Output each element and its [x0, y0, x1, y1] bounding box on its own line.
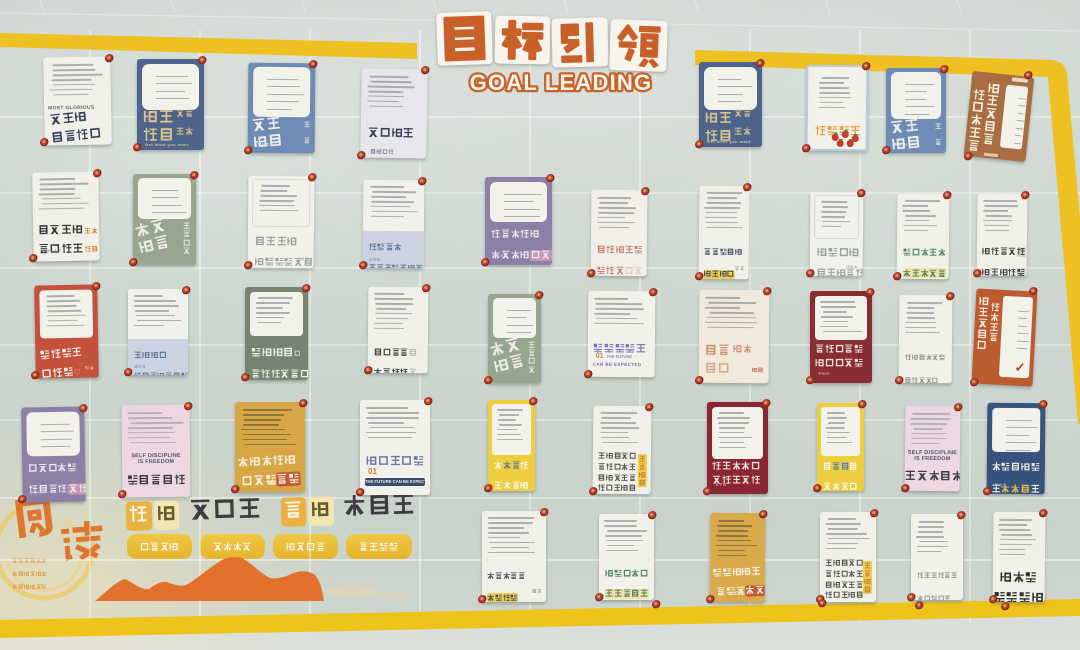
svg-text:GOAL LEADING: GOAL LEADING	[470, 70, 653, 95]
